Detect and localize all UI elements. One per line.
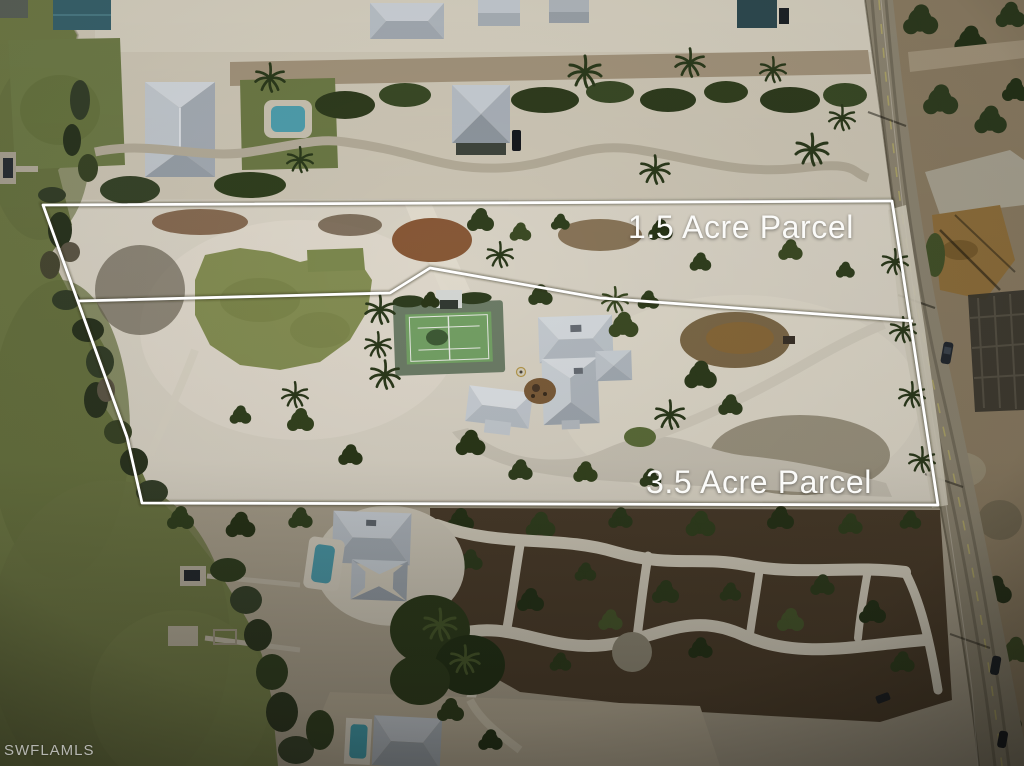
aerial-photo: 1.5 Acre Parcel 3.5 Acre Parcel SWFLAMLS <box>0 0 1024 766</box>
parcel-label-3-5-acre: 3.5 Acre Parcel <box>646 466 872 498</box>
bottom-shade <box>0 0 1024 766</box>
parcel-label-1-5-acre: 1.5 Acre Parcel <box>628 211 854 243</box>
watermark: SWFLAMLS <box>4 742 95 760</box>
aerial-photo-canvas <box>0 0 1024 766</box>
